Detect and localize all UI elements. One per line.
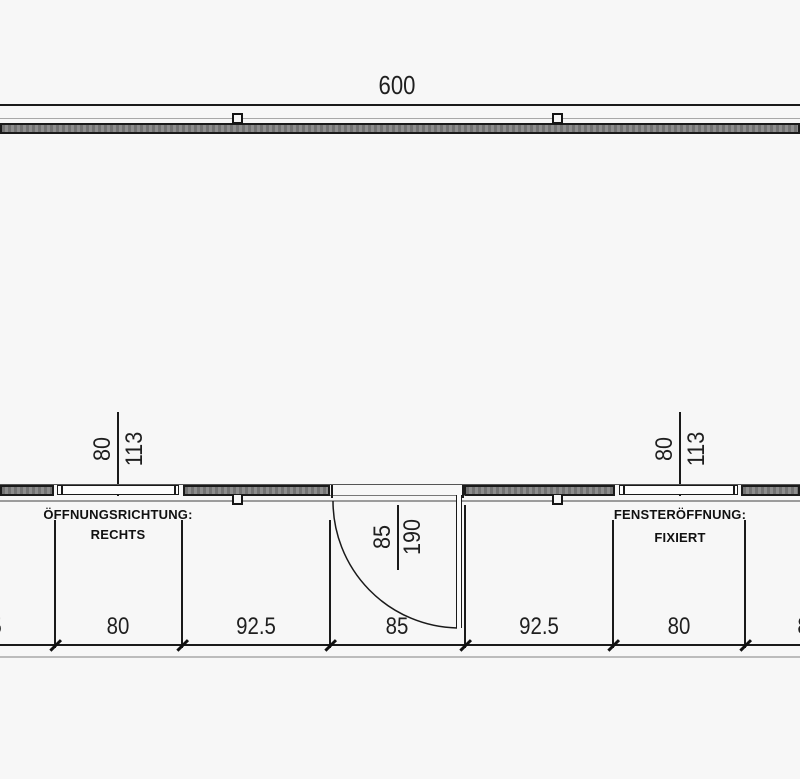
overall-width-dimension: 600 <box>355 72 440 98</box>
window-frame-tick <box>733 485 735 495</box>
bottom-wall-inner-face-line <box>0 500 800 502</box>
right-window-height-dimension: 113 <box>685 420 709 478</box>
door-jamb-tick <box>462 485 464 498</box>
wall-connector-mark <box>232 495 243 505</box>
segment-dimension: 80 <box>84 615 152 639</box>
bottom-dimension-line <box>0 644 800 646</box>
wall-connector-mark <box>232 113 243 124</box>
right-window-note-line1: FENSTERÖFFNUNG: <box>590 508 770 521</box>
extension-line <box>54 520 56 648</box>
extension-line <box>464 505 466 648</box>
segment-dimension: 85 <box>363 615 431 639</box>
bottom-wall-segment <box>741 485 800 496</box>
window-frame-tick <box>174 485 176 495</box>
bottom-boundary-line <box>0 656 800 658</box>
right-window-frame <box>619 485 738 495</box>
top-wall-inner-face-line <box>0 118 800 119</box>
door-width-dimension: 85 <box>371 508 395 566</box>
door-height-dimension: 190 <box>401 508 425 566</box>
extension-line <box>744 520 746 648</box>
top-dimension-line <box>0 104 800 106</box>
extension-line <box>329 520 331 648</box>
segment-dimension: 92.5 <box>222 615 290 639</box>
segment-dimension-fragment: 8 <box>784 615 800 639</box>
right-window-note-line2: FIXIERT <box>590 531 770 544</box>
left-window-height-dimension: 113 <box>123 420 147 478</box>
bottom-wall-segment <box>183 485 330 496</box>
right-window-sill-dimension: 80 <box>653 420 677 478</box>
door-leaf <box>456 495 462 628</box>
floorplan-drawing: 600 80 113 80 113 85 190 ÖFFNUNGSRICHTUN… <box>0 0 800 779</box>
segment-dimension: 92.5 <box>505 615 573 639</box>
left-window-frame <box>57 485 179 495</box>
door-jamb-tick <box>331 485 333 498</box>
wall-connector-mark <box>552 113 563 124</box>
segment-dimension: 80 <box>645 615 713 639</box>
door-swing-arc <box>0 0 800 779</box>
extension-line <box>181 520 183 648</box>
bottom-wall-segment <box>464 485 615 496</box>
door-opening-inner-face-line <box>330 495 465 496</box>
window-frame-tick <box>61 485 63 495</box>
wall-connector-mark <box>552 495 563 505</box>
top-wall <box>0 123 800 134</box>
extension-line <box>612 520 614 648</box>
window-frame-tick <box>623 485 625 495</box>
segment-dimension-fragment: 5 <box>0 615 15 639</box>
left-window-sill-dimension: 80 <box>91 420 115 478</box>
bottom-wall-segment <box>0 485 54 496</box>
